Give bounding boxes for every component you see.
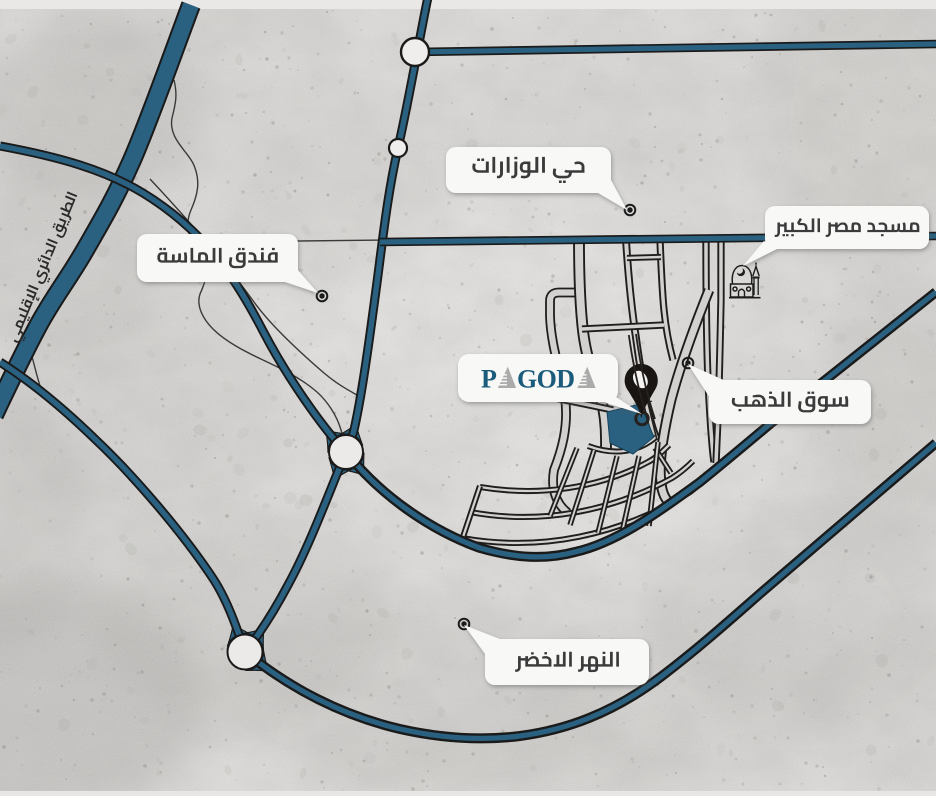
svg-text:GOD: GOD: [517, 365, 574, 394]
svg-text:P: P: [481, 365, 497, 394]
